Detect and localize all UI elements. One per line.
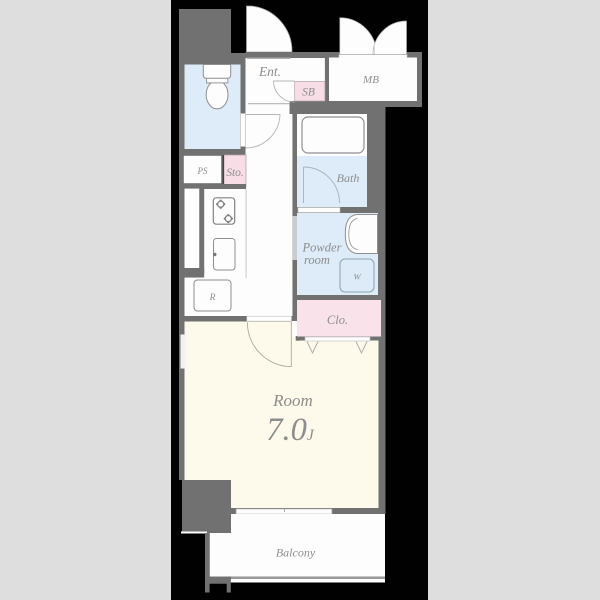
svg-text:MB: MB xyxy=(362,74,379,86)
svg-text:Room: Room xyxy=(272,391,313,410)
svg-text:SB: SB xyxy=(302,87,315,99)
svg-text:R: R xyxy=(209,293,216,303)
svg-text:Bath: Bath xyxy=(337,171,360,185)
svg-text:Clo.: Clo. xyxy=(327,313,348,327)
svg-text:Ent.: Ent. xyxy=(258,64,281,79)
svg-text:PS: PS xyxy=(197,166,208,176)
svg-text:room: room xyxy=(304,253,330,267)
svg-text:W: W xyxy=(353,272,361,282)
svg-text:Balcony: Balcony xyxy=(276,546,316,560)
svg-text:Sto.: Sto. xyxy=(226,167,244,179)
